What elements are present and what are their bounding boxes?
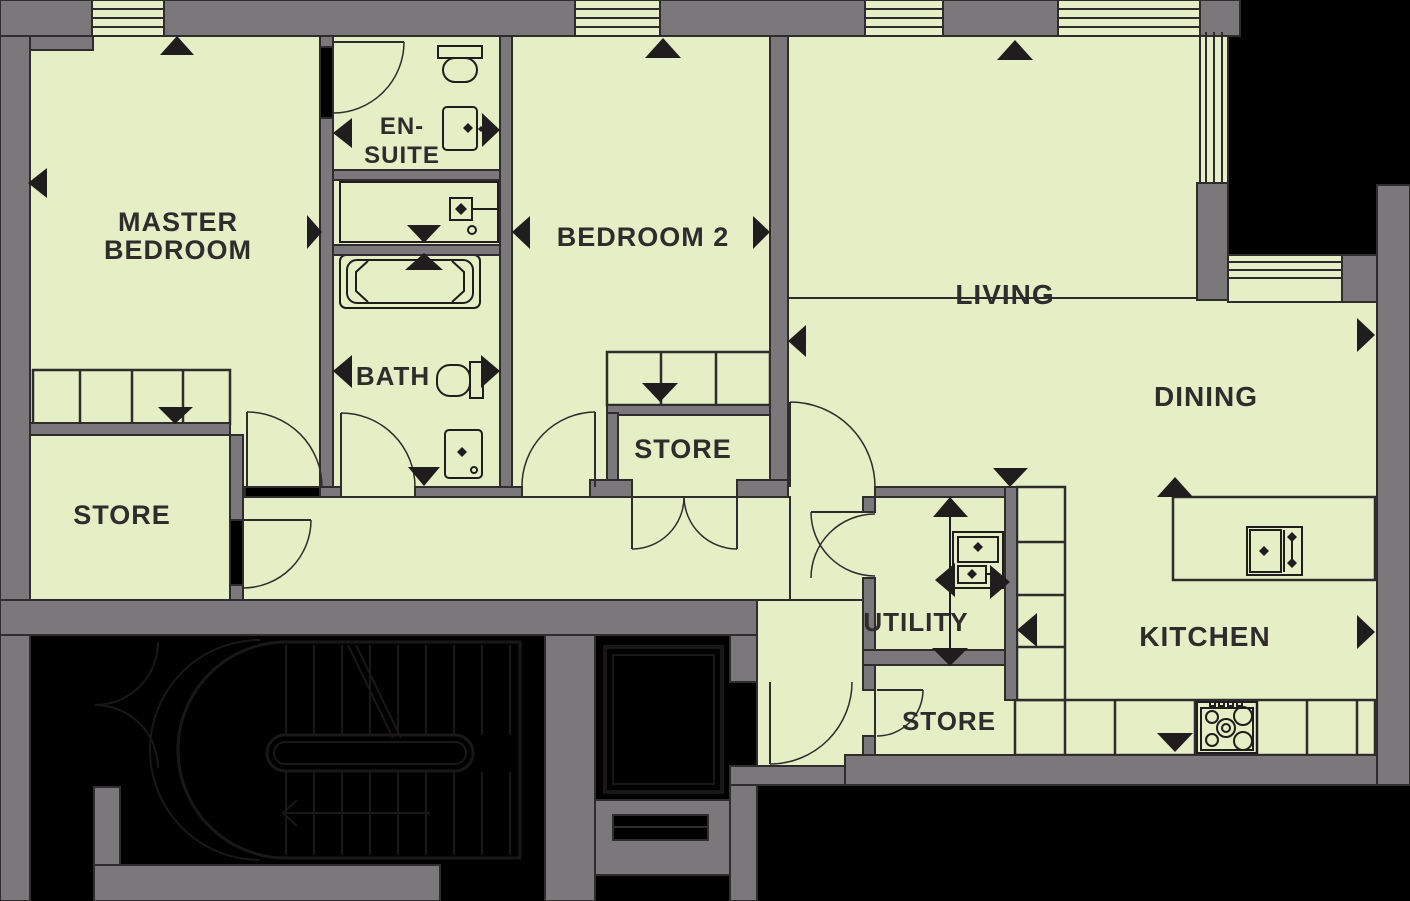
room-label-bath: BATH	[356, 361, 430, 391]
room-label-bedroom2: BEDROOM 2	[557, 222, 730, 252]
room-label-master-1: MASTER	[118, 207, 238, 237]
kitchen-island	[1173, 497, 1375, 580]
room-label-master-2: BEDROOM	[104, 235, 252, 265]
room-label-utility: UTILITY	[863, 607, 968, 637]
room-label-store-left: STORE	[73, 500, 171, 530]
room-label-store-utility: STORE	[902, 706, 996, 736]
room-label-dining: DINING	[1154, 381, 1258, 412]
room-label-ensuite-1: EN-	[380, 113, 424, 140]
floor-plan: MASTER BEDROOM EN- SUITE BATH BEDROOM 2 …	[0, 0, 1410, 901]
floor-plan-page: MASTER BEDROOM EN- SUITE BATH BEDROOM 2 …	[0, 0, 1410, 901]
room-label-ensuite-2: SUITE	[364, 142, 440, 169]
elevator-door	[613, 815, 708, 840]
room-label-kitchen: KITCHEN	[1139, 621, 1270, 652]
room-label-living: LIVING	[955, 279, 1054, 310]
room-label-store-center: STORE	[634, 434, 732, 464]
